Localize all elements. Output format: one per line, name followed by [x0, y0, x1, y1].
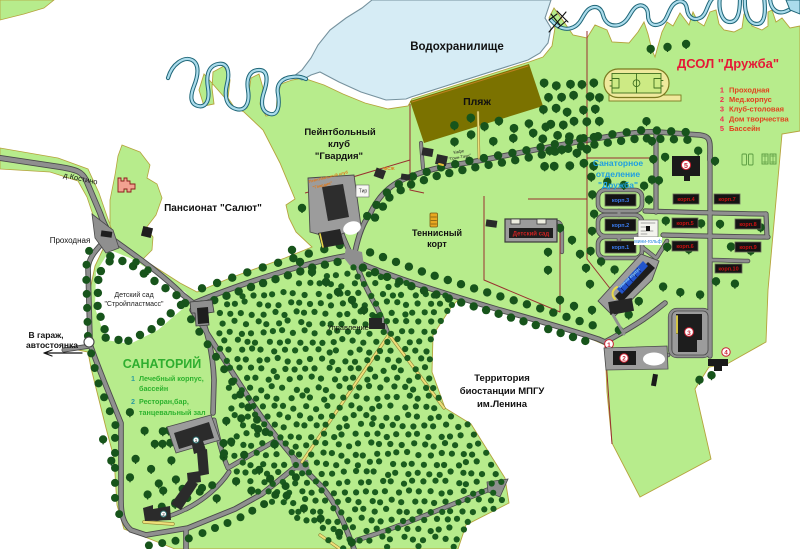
svg-text:Ресторан,бар,: Ресторан,бар, [139, 397, 189, 406]
svg-text:клуб: клуб [328, 139, 350, 150]
svg-text:корт: корт [427, 239, 447, 249]
svg-text:бассейн: бассейн [139, 384, 168, 393]
svg-text:Тир: Тир [359, 189, 368, 195]
svg-text:МСЖ: МСЖ [383, 166, 395, 171]
svg-text:В гараж,: В гараж, [28, 330, 63, 340]
svg-text:Водохранилище: Водохранилище [410, 41, 504, 53]
svg-text:корп.3: корп.3 [612, 198, 629, 204]
svg-text:2: 2 [131, 397, 135, 406]
svg-text:корп.4: корп.4 [677, 197, 695, 203]
svg-text:Проходная: Проходная [50, 236, 91, 245]
svg-text:Лечебный корпус,: Лечебный корпус, [139, 374, 204, 383]
svg-text:Детский сад: Детский сад [114, 291, 153, 299]
svg-text:корп.8: корп.8 [739, 222, 756, 228]
svg-text:Клуб-столовая: Клуб-столовая [729, 105, 784, 114]
svg-text:5: 5 [684, 163, 688, 170]
svg-text:Управление: Управление [327, 323, 369, 332]
svg-text:Бассейн: Бассейн [729, 124, 760, 133]
svg-text:САНАТОРИЙ: САНАТОРИЙ [123, 356, 202, 371]
svg-text:Пансионат "Салют": Пансионат "Салют" [164, 203, 262, 214]
svg-text:"Дружба": "Дружба" [598, 180, 638, 190]
svg-text:1: 1 [720, 86, 724, 95]
svg-text:корп.5: корп.5 [676, 221, 693, 227]
svg-text:Санаторное: Санаторное [593, 158, 644, 168]
svg-text:Пляж: Пляж [463, 96, 491, 108]
svg-text:Проходная: Проходная [729, 86, 770, 95]
svg-text:мини-гольф: мини-гольф [634, 239, 661, 245]
svg-text:Дом творчества: Дом творчества [729, 114, 789, 123]
svg-text:корп.10: корп.10 [718, 267, 738, 273]
svg-text:корп.2: корп.2 [612, 223, 629, 229]
svg-text:Пейнтбольный: Пейнтбольный [304, 127, 376, 138]
svg-text:Мед.корпус: Мед.корпус [729, 95, 772, 104]
svg-text:танцевальный зал: танцевальный зал [139, 408, 206, 417]
svg-text:"Стройпластмасс": "Стройпластмасс" [104, 300, 164, 308]
svg-text:4: 4 [724, 350, 728, 357]
svg-text:Теннисный: Теннисный [412, 228, 462, 238]
svg-text:5: 5 [720, 124, 724, 133]
svg-text:корп.6: корп.6 [676, 244, 693, 250]
svg-text:отделение: отделение [596, 169, 641, 179]
svg-text:1: 1 [131, 374, 135, 383]
svg-text:ДСОЛ "Дружба": ДСОЛ "Дружба" [677, 56, 779, 71]
svg-text:2: 2 [622, 356, 626, 363]
svg-text:биостанции МПГУ: биостанции МПГУ [460, 386, 545, 397]
svg-text:2: 2 [162, 512, 165, 517]
svg-text:Территория: Территория [474, 373, 530, 384]
svg-text:корп.7: корп.7 [718, 197, 735, 203]
svg-text:2: 2 [720, 95, 724, 104]
svg-text:корп.9: корп.9 [739, 245, 756, 251]
svg-text:Детский сад: Детский сад [513, 231, 550, 238]
svg-text:автостоянка: автостоянка [26, 340, 78, 350]
svg-text:"Гвардия": "Гвардия" [315, 151, 363, 162]
svg-text:им.Ленина: им.Ленина [477, 399, 528, 410]
svg-text:3: 3 [720, 105, 724, 114]
svg-text:корп.1: корп.1 [612, 245, 629, 251]
svg-text:3: 3 [687, 330, 691, 337]
svg-text:1: 1 [195, 438, 198, 443]
